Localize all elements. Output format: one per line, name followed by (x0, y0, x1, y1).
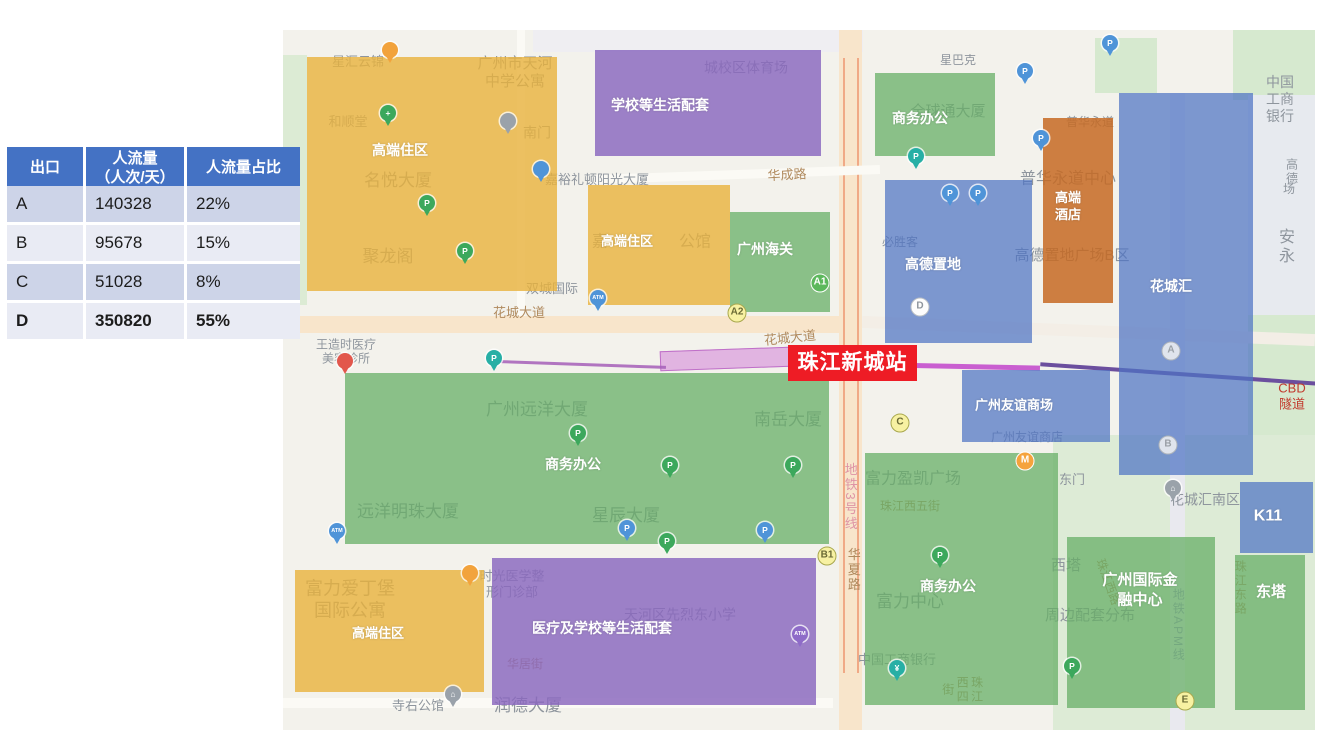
map-pin-blue[interactable] (533, 161, 549, 177)
map-pin-p[interactable]: P (1102, 35, 1118, 51)
exit-flow: 51028 (86, 264, 184, 300)
map-label: 地铁3号线 (842, 462, 858, 531)
map-canvas[interactable]: 珠江新城站 星汇云锦广州市天河 中学公寓和顺堂南门名悦大厦嘉裕礼顿阳光大厦华成路… (283, 30, 1315, 730)
map-label: 东门 (1059, 472, 1085, 488)
map-exit-badge-C[interactable]: C (891, 414, 910, 433)
map-pin-p[interactable]: P (662, 457, 678, 473)
region-residential-nw (307, 57, 557, 291)
region-label-friendship-store: 广州友谊商场 (975, 398, 1053, 415)
region-label-school-north: 学校等生活配套 (611, 96, 709, 114)
exit-name: D (7, 303, 83, 339)
region-label-medical-school-south: 医疗及学校等生活配套 (532, 619, 672, 637)
table-header-share: 人流量占比 (187, 147, 300, 190)
map-label: 花城大道 (493, 305, 545, 321)
region-label-east-tower: 东塔 (1256, 582, 1286, 602)
region-label-office-south: 商务办公 (920, 577, 976, 595)
station-label: 珠江新城站 (788, 345, 917, 381)
map-label: 华夏路 (845, 548, 861, 593)
map-label: 华成路 (767, 166, 807, 184)
exit-name: C (7, 264, 83, 300)
region-label-customs: 广州海关 (737, 240, 793, 258)
region-label-office-main: 商务办公 (545, 455, 601, 473)
map-patch-block-top (533, 30, 863, 52)
map-pin-p[interactable]: P (419, 195, 435, 211)
exit-share: 8% (187, 264, 300, 300)
region-label-huachenghui: 花城汇 (1150, 277, 1192, 295)
map-pin-⌂[interactable]: ⌂ (1165, 480, 1181, 496)
region-label-residential-jiayu: 高端住区 (601, 234, 653, 251)
table-header-exit: 出口 (7, 147, 83, 190)
map-pin-p[interactable]: P (970, 185, 986, 201)
map-exit-badge-A[interactable]: A (1162, 342, 1181, 361)
map-pin-gray[interactable] (500, 113, 516, 129)
slide: 出口 人流量 （人次/天） 人流量占比 A 140328 22% B 95678… (0, 0, 1333, 750)
map-pin-p[interactable]: P (486, 350, 502, 366)
map-pin-orange[interactable] (462, 565, 478, 581)
metro-line5-west (500, 360, 666, 369)
map-exit-badge-A2[interactable]: A2 (728, 304, 747, 323)
map-pin-p[interactable]: P (932, 547, 948, 563)
map-label: 场 (1283, 182, 1295, 196)
map-pin-atm[interactable]: ATM (792, 626, 808, 642)
region-customs (730, 212, 830, 312)
map-exit-badge-A1[interactable]: A1 (811, 274, 830, 293)
exit-name: B (7, 225, 83, 261)
map-label: CBD隧道 (1278, 380, 1305, 411)
region-east-tower (1235, 555, 1305, 710)
map-exit-badge-B[interactable]: B (1159, 436, 1178, 455)
exit-flow: 95678 (86, 225, 184, 261)
map-pin-orange[interactable] (382, 42, 398, 58)
map-exit-badge-E[interactable]: E (1176, 692, 1195, 711)
map-pin-atm[interactable]: ATM (329, 523, 345, 539)
map-pin-p[interactable]: P (457, 243, 473, 259)
exit-share: 55% (187, 303, 300, 339)
exit-flow-table: 出口 人流量 （人次/天） 人流量占比 A 140328 22% B 95678… (7, 147, 300, 339)
map-exit-badge-B1[interactable]: B1 (818, 547, 837, 566)
map-pin-p[interactable]: P (1064, 658, 1080, 674)
region-label-k11: K11 (1254, 507, 1282, 528)
region-label-ifc: 广州国际金 融中心 (1102, 571, 1177, 610)
exit-share: 22% (187, 186, 300, 222)
map-pin-p[interactable]: P (785, 457, 801, 473)
map-pin-¥[interactable]: ¥ (889, 660, 905, 676)
map-pin-p[interactable]: P (619, 520, 635, 536)
exit-name: A (7, 186, 83, 222)
region-label-residential-nw: 高端住区 (372, 141, 428, 159)
map-label: 花城汇南区 (1170, 492, 1240, 509)
metro-line5-station-band (660, 347, 791, 372)
region-label-gtland-plaza: 高德置地 (905, 255, 961, 273)
region-label-office-north: 商务办公 (892, 109, 948, 127)
map-label: 寺右公馆 (392, 698, 444, 714)
map-pin-p[interactable]: P (908, 148, 924, 164)
map-label: 中国工商银行 (1263, 74, 1298, 124)
region-label-residential-sw: 高端住区 (352, 626, 404, 643)
map-pin-atm[interactable]: ATM (590, 290, 606, 306)
map-pin-p[interactable]: P (1033, 130, 1049, 146)
map-exit-badge-D[interactable]: D (911, 298, 930, 317)
map-road-huacheng-avenue (283, 316, 862, 333)
map-label: 星巴克 (940, 53, 976, 67)
map-pin-⌂[interactable]: ⌂ (445, 686, 461, 702)
exit-share: 15% (187, 225, 300, 261)
exit-flow: 140328 (86, 186, 184, 222)
table-header-flow: 人流量 （人次/天） (86, 147, 184, 190)
map-pin-+[interactable]: + (380, 105, 396, 121)
map-pin-p[interactable]: P (757, 522, 773, 538)
exit-flow: 350820 (86, 303, 184, 339)
map-pin-p[interactable]: P (570, 425, 586, 441)
map-pin-p[interactable]: P (942, 185, 958, 201)
region-label-hotel: 高端 酒店 (1055, 190, 1081, 224)
map-label: 安永 (1273, 228, 1301, 266)
region-ifc (1067, 537, 1215, 708)
map-exit-badge-M[interactable]: M (1016, 452, 1035, 471)
map-pin-red[interactable] (337, 353, 353, 369)
map-pin-p[interactable]: P (1017, 63, 1033, 79)
map-patch-block-anyong (1248, 95, 1315, 315)
map-pin-p[interactable]: P (659, 533, 675, 549)
